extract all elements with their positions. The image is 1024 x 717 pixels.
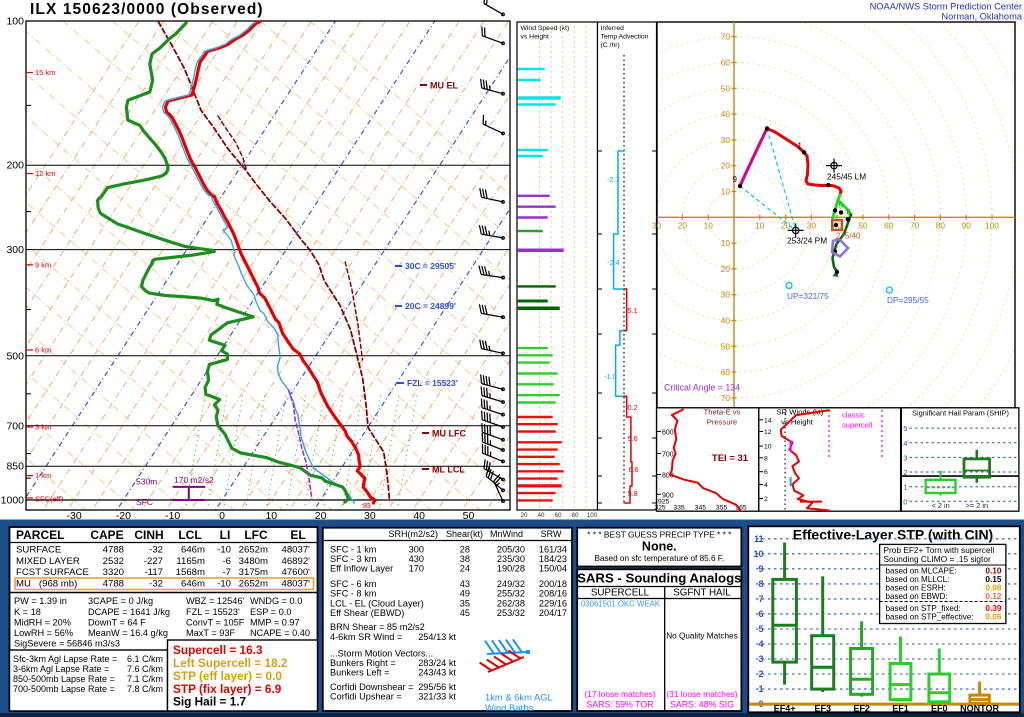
svg-text:70: 70	[721, 32, 731, 42]
svg-text:100: 100	[985, 220, 999, 230]
svg-text:Effective-Layer STP (with CIN): Effective-Layer STP (with CIN)	[793, 527, 993, 543]
svg-text:MaxT = 93F: MaxT = 93F	[186, 628, 235, 638]
svg-text:161/34: 161/34	[539, 545, 567, 555]
svg-text:Wind Speed (kt): Wind Speed (kt)	[521, 25, 570, 32]
svg-text:249/32: 249/32	[497, 579, 525, 589]
svg-text:345: 345	[695, 505, 707, 512]
svg-text:4: 4	[758, 639, 763, 649]
svg-text:Corfidi Downshear =: Corfidi Downshear =	[330, 682, 414, 692]
svg-text:Sig Hail = 1.7: Sig Hail = 1.7	[173, 695, 247, 709]
svg-text:SGFNT HAIL: SGFNT HAIL	[673, 588, 731, 599]
svg-text:SFC - 3 km: SFC - 3 km	[330, 554, 377, 564]
svg-text:7.1 C/km: 7.1 C/km	[127, 674, 163, 684]
svg-text:4: 4	[764, 482, 768, 489]
svg-text:28: 28	[460, 545, 470, 555]
svg-text:LI: LI	[220, 528, 231, 542]
svg-text:Wind Barbs: Wind Barbs	[485, 702, 534, 713]
svg-text:170 m2/s2: 170 m2/s2	[174, 475, 214, 485]
svg-text:10: 10	[721, 238, 731, 248]
svg-text:< 2 in: < 2 in	[931, 501, 949, 510]
svg-text:EF3: EF3	[814, 704, 831, 714]
svg-text:6.1 C/km: 6.1 C/km	[127, 654, 163, 664]
svg-text:3480m: 3480m	[239, 556, 268, 567]
svg-text:8: 8	[758, 579, 763, 589]
svg-text:supercell: supercell	[842, 421, 873, 430]
svg-text:LFC: LFC	[244, 528, 268, 542]
svg-text:30: 30	[721, 135, 731, 145]
svg-text:6: 6	[758, 609, 763, 619]
svg-text:3: 3	[903, 453, 907, 462]
svg-text:20: 20	[721, 161, 731, 171]
svg-text:* * * BEST GUESS PRECIP TYPE *: * * * BEST GUESS PRECIP TYPE * * *	[587, 530, 732, 540]
svg-text:80: 80	[571, 512, 579, 519]
svg-text:2: 2	[764, 496, 768, 503]
svg-text:based on STP_effective:: based on STP_effective:	[886, 613, 974, 622]
svg-text:0.2: 0.2	[628, 403, 638, 412]
svg-text:EF4+: EF4+	[774, 704, 796, 714]
svg-text:10: 10	[753, 549, 763, 559]
svg-text:-6: -6	[222, 556, 231, 567]
svg-text:Corfidi Upshear =: Corfidi Upshear =	[330, 692, 402, 702]
svg-text:646m: 646m	[181, 579, 205, 590]
svg-text:Pressure: Pressure	[707, 418, 737, 427]
svg-text:4788: 4788	[103, 579, 124, 590]
svg-text:700-500mb Lapse Rate =: 700-500mb Lapse Rate =	[13, 684, 115, 694]
svg-text:229/16: 229/16	[539, 599, 567, 609]
svg-text:9: 9	[758, 564, 763, 574]
svg-text:300: 300	[6, 244, 24, 256]
svg-text:530m: 530m	[136, 477, 157, 487]
svg-text:295/56 kt: 295/56 kt	[418, 682, 456, 692]
svg-text:ESP = 0.0: ESP = 0.0	[250, 607, 291, 617]
svg-text:MMP = 0.97: MMP = 0.97	[250, 618, 300, 628]
svg-text:83: 83	[363, 503, 371, 510]
svg-text:LCL - EL (Cloud Layer): LCL - EL (Cloud Layer)	[330, 599, 424, 609]
svg-text:TEI = 31: TEI = 31	[712, 453, 749, 464]
svg-text:700: 700	[6, 420, 24, 432]
svg-text:PW = 1.39 in: PW = 1.39 in	[14, 596, 67, 606]
svg-text:20C = 24899': 20C = 24899'	[405, 301, 456, 311]
svg-text:430: 430	[409, 554, 424, 564]
svg-text:10: 10	[764, 444, 772, 451]
svg-text:No Quality Matches: No Quality Matches	[666, 632, 737, 641]
svg-text:40: 40	[721, 316, 731, 326]
svg-text:Eff Shear (EBWD): Eff Shear (EBWD)	[330, 608, 404, 618]
svg-text:300: 300	[409, 545, 424, 555]
svg-text:30C = 29505': 30C = 29505'	[405, 261, 456, 271]
svg-text:235/30: 235/30	[497, 554, 525, 564]
svg-text:5: 5	[903, 424, 907, 433]
svg-text:255/32: 255/32	[497, 589, 525, 599]
svg-text:100: 100	[587, 512, 598, 519]
svg-text:ConvT = 105F: ConvT = 105F	[186, 618, 245, 628]
svg-text:UP=321/75: UP=321/75	[787, 291, 829, 301]
svg-text:WEAK: WEAK	[637, 600, 661, 609]
svg-text:3-6km Agl Lapse Rate =: 3-6km Agl Lapse Rate =	[13, 664, 109, 674]
svg-text:EL: EL	[290, 528, 305, 542]
svg-text:30: 30	[721, 290, 731, 300]
svg-text:5.1: 5.1	[628, 306, 638, 315]
svg-text:80: 80	[936, 220, 946, 230]
svg-text:3175m: 3175m	[239, 567, 268, 578]
svg-text:None.: None.	[642, 540, 677, 554]
svg-text:355: 355	[716, 505, 728, 512]
svg-text:MidRH = 20%: MidRH = 20%	[14, 618, 71, 628]
svg-text:47600': 47600'	[281, 567, 310, 578]
svg-text:208/16: 208/16	[539, 589, 567, 599]
svg-text:...Storm Motion Vectors...: ...Storm Motion Vectors...	[330, 649, 433, 659]
svg-text:254/13 kt: 254/13 kt	[418, 632, 456, 642]
svg-text:1000: 1000	[1, 495, 25, 507]
svg-text:48037': 48037'	[281, 579, 310, 590]
svg-text:205/30: 205/30	[497, 545, 525, 555]
svg-text:-7: -7	[222, 567, 231, 578]
svg-text:3CAPE = 0 J/kg: 3CAPE = 0 J/kg	[88, 596, 153, 606]
svg-text:SRW: SRW	[541, 529, 562, 539]
svg-text:646m: 646m	[181, 545, 205, 556]
svg-text:38: 38	[460, 554, 470, 564]
svg-text:Shear(kt): Shear(kt)	[446, 529, 483, 539]
svg-text:60: 60	[554, 512, 562, 519]
svg-text:60: 60	[884, 220, 894, 230]
svg-text:6.6: 6.6	[629, 465, 639, 474]
svg-text:40: 40	[721, 109, 731, 119]
svg-text:90: 90	[962, 220, 972, 230]
svg-text:7: 7	[758, 594, 763, 604]
svg-text:MU EL: MU EL	[430, 81, 459, 91]
svg-text:K = 18: K = 18	[14, 607, 41, 617]
svg-text:14: 14	[764, 417, 772, 424]
svg-text:200/18: 200/18	[539, 579, 567, 589]
svg-text:70: 70	[910, 220, 920, 230]
svg-text:vs Height: vs Height	[521, 34, 549, 41]
svg-text:500: 500	[6, 350, 24, 362]
svg-text:DP=295/55: DP=295/55	[887, 295, 929, 305]
svg-text:2: 2	[758, 669, 763, 679]
svg-text:MU LFC: MU LFC	[432, 429, 466, 439]
svg-text:4788: 4788	[103, 545, 124, 556]
svg-text:100: 100	[6, 16, 24, 28]
svg-text:Supercell = 16.3: Supercell = 16.3	[173, 643, 263, 657]
svg-text:WNDG = 0.0: WNDG = 0.0	[250, 596, 302, 606]
svg-text:MIXED LAYER: MIXED LAYER	[16, 556, 80, 567]
svg-text:170: 170	[409, 564, 424, 574]
svg-text:STP (eff layer) = 0.0: STP (eff layer) = 0.0	[173, 669, 282, 683]
svg-text:6: 6	[764, 469, 768, 476]
svg-text:Theta-E vs: Theta-E vs	[704, 408, 741, 417]
svg-text:NOAA/NWS Storm Prediction Cent: NOAA/NWS Storm Prediction Center	[870, 2, 1022, 12]
svg-text:>= 2 in: >= 2 in	[965, 501, 988, 510]
svg-text:60: 60	[721, 367, 731, 377]
svg-text:253/32: 253/32	[497, 608, 525, 618]
svg-text:8: 8	[764, 455, 768, 462]
svg-text:12: 12	[764, 429, 772, 436]
svg-text:2652m: 2652m	[239, 545, 268, 556]
svg-text:-10: -10	[217, 579, 231, 590]
svg-text:WBZ = 12546': WBZ = 12546'	[186, 596, 244, 606]
svg-text:2532: 2532	[103, 556, 124, 567]
svg-text:1 km: 1 km	[35, 471, 51, 480]
svg-text:SURFACE: SURFACE	[16, 545, 61, 556]
svg-text:5: 5	[758, 624, 763, 634]
svg-text:SFC: SFC	[136, 497, 153, 507]
svg-text:11: 11	[754, 534, 764, 544]
svg-text:49: 49	[460, 589, 470, 599]
svg-text:50: 50	[721, 341, 731, 351]
svg-text:3: 3	[758, 654, 763, 664]
svg-text:6 km: 6 km	[35, 346, 51, 355]
svg-text:50: 50	[721, 83, 731, 93]
svg-text:CAPE: CAPE	[90, 528, 123, 542]
svg-text:SFC - 1 km: SFC - 1 km	[330, 545, 377, 555]
svg-text:ML LCL: ML LCL	[432, 465, 465, 475]
svg-text:3 km: 3 km	[35, 423, 51, 432]
svg-text:1: 1	[798, 142, 803, 151]
svg-text:03061501.OKC: 03061501.OKC	[581, 600, 635, 609]
svg-text:50: 50	[858, 220, 868, 230]
svg-text:Left Supercell = 18.2: Left Supercell = 18.2	[173, 656, 288, 670]
svg-text:1km & 6km AGL: 1km & 6km AGL	[485, 692, 553, 703]
svg-text:46892': 46892'	[281, 556, 310, 567]
svg-text:10: 10	[755, 220, 765, 230]
svg-text:5.6: 5.6	[628, 434, 638, 443]
svg-text:NCAPE = 0.40: NCAPE = 0.40	[250, 628, 310, 638]
svg-text:5.8: 5.8	[628, 489, 638, 498]
svg-text:262/38: 262/38	[497, 599, 525, 609]
svg-text:7.8 C/km: 7.8 C/km	[127, 684, 163, 694]
svg-text:-32: -32	[149, 545, 163, 556]
svg-text:Critical Angle = 134: Critical Angle = 134	[664, 383, 740, 393]
svg-text:70: 70	[721, 393, 731, 403]
svg-text:SFC - 8 km: SFC - 8 km	[330, 589, 377, 599]
svg-text:48037': 48037'	[281, 545, 310, 556]
svg-text:204/17: 204/17	[539, 608, 567, 618]
svg-text:-32: -32	[149, 579, 163, 590]
svg-text:60: 60	[721, 58, 731, 68]
svg-text:SFC - 6 km: SFC - 6 km	[330, 579, 377, 589]
svg-text:10: 10	[721, 187, 731, 197]
svg-text:2652m: 2652m	[239, 579, 268, 590]
svg-text:Inferred: Inferred	[601, 25, 625, 32]
svg-text:12 km: 12 km	[35, 169, 55, 178]
svg-text:MnWind: MnWind	[490, 529, 523, 539]
svg-text:600: 600	[662, 430, 674, 437]
svg-text:MU (968 mb): MU (968 mb)	[16, 579, 77, 590]
svg-text:1: 1	[758, 684, 763, 694]
svg-text:EF1: EF1	[892, 704, 909, 714]
svg-text:4-6km SR Wind =: 4-6km SR Wind =	[330, 632, 402, 642]
svg-text:-227: -227	[144, 556, 163, 567]
svg-text:classic: classic	[842, 411, 865, 420]
svg-text:Bunkers Right =: Bunkers Right =	[330, 658, 396, 668]
svg-text:EF0: EF0	[931, 704, 948, 714]
svg-text:CINH: CINH	[134, 528, 163, 542]
svg-text:SUPERCELL: SUPERCELL	[591, 588, 650, 599]
svg-text:325: 325	[654, 505, 666, 512]
svg-text:0.12: 0.12	[985, 591, 1002, 601]
svg-text:40: 40	[537, 512, 545, 519]
svg-text:SARS: 48% SIG: SARS: 48% SIG	[670, 700, 734, 710]
svg-text:20: 20	[520, 512, 528, 519]
svg-text:BRN Shear = 85 m2/s2: BRN Shear = 85 m2/s2	[330, 622, 425, 632]
svg-text:43: 43	[460, 579, 470, 589]
svg-text:1165m: 1165m	[176, 556, 205, 567]
svg-text:SARS: 59% TOR: SARS: 59% TOR	[586, 700, 653, 710]
svg-text:-1.0: -1.0	[604, 372, 617, 381]
svg-text:ILX 150623/0000 (Observed): ILX 150623/0000 (Observed)	[30, 1, 264, 18]
svg-text:(C /hr): (C /hr)	[601, 42, 620, 49]
svg-text:Based on sfc temperature of 85: Based on sfc temperature of 85.6 F.	[594, 554, 724, 563]
svg-text:700: 700	[662, 451, 674, 458]
svg-text:321/33 kt: 321/33 kt	[418, 692, 456, 702]
svg-text:PARCEL: PARCEL	[16, 528, 64, 542]
svg-text:184/23: 184/23	[539, 554, 567, 564]
svg-text:35: 35	[460, 599, 470, 609]
svg-text:190/28: 190/28	[497, 564, 525, 574]
svg-text:(17 loose matches): (17 loose matches)	[584, 689, 655, 699]
svg-text:SigSevere = 56846 m3/s3: SigSevere = 56846 m3/s3	[14, 639, 120, 649]
svg-text:DownT = 64 F: DownT = 64 F	[88, 618, 146, 628]
svg-text:EF2: EF2	[853, 704, 870, 714]
svg-text:200: 200	[6, 160, 24, 172]
svg-text:MeanW = 16.4 g/kg: MeanW = 16.4 g/kg	[88, 628, 168, 638]
svg-text:5: 5	[839, 202, 844, 211]
svg-text:45: 45	[460, 608, 470, 618]
svg-text:0.06: 0.06	[985, 612, 1002, 622]
svg-text:(31 loose matches): (31 loose matches)	[666, 689, 737, 699]
svg-text:20: 20	[678, 220, 688, 230]
svg-text:283/24 kt: 283/24 kt	[418, 658, 456, 668]
svg-text:SARS - Sounding Analogs: SARS - Sounding Analogs	[577, 571, 741, 586]
svg-text:LCL: LCL	[178, 528, 201, 542]
svg-text:FZL = 15523': FZL = 15523'	[186, 607, 240, 617]
svg-text:24: 24	[460, 564, 470, 574]
svg-text:FZL = 15523': FZL = 15523'	[407, 378, 458, 388]
svg-text:1568m: 1568m	[176, 567, 205, 578]
svg-text:Sfc-3km Agl Lapse Rate =: Sfc-3km Agl Lapse Rate =	[13, 654, 117, 664]
svg-text:Temp Advection: Temp Advection	[601, 34, 649, 41]
svg-text:30: 30	[652, 220, 662, 230]
svg-text:SFC(eff): SFC(eff)	[35, 495, 64, 504]
svg-text:6: 6	[847, 208, 852, 217]
svg-text:Sounding CLIMO = .15 sigtor: Sounding CLIMO = .15 sigtor	[884, 554, 991, 564]
svg-text:0: 0	[903, 497, 907, 506]
svg-text:4: 4	[903, 439, 907, 448]
svg-text:based on EBWD:: based on EBWD:	[886, 592, 948, 601]
svg-text:850-500mb Lapse Rate =: 850-500mb Lapse Rate =	[13, 674, 115, 684]
svg-text:150/04: 150/04	[539, 564, 567, 574]
svg-text:20: 20	[721, 264, 731, 274]
svg-text:10: 10	[704, 220, 714, 230]
svg-text:15 km: 15 km	[35, 68, 55, 77]
svg-text:Significant Hail Param (SHIP): Significant Hail Param (SHIP)	[912, 409, 1009, 418]
svg-text:9: 9	[733, 175, 738, 184]
svg-text:-10: -10	[217, 545, 231, 556]
svg-text:-117: -117	[145, 567, 164, 578]
svg-text:253/24 PM: 253/24 PM	[787, 236, 827, 246]
svg-text:9 km: 9 km	[35, 260, 51, 269]
svg-text:Norman, Oklahoma: Norman, Oklahoma	[941, 12, 1022, 22]
svg-text:Eff Inflow Layer: Eff Inflow Layer	[330, 564, 393, 574]
svg-text:LowRH = 56%: LowRH = 56%	[14, 628, 73, 638]
svg-text:3320: 3320	[103, 567, 124, 578]
svg-text:-2.7: -2.7	[607, 175, 620, 184]
svg-text:NONTOR: NONTOR	[960, 704, 999, 714]
svg-text:850: 850	[6, 461, 24, 473]
svg-text:1: 1	[903, 483, 907, 492]
svg-text:DCAPE = 1641 J/kg: DCAPE = 1641 J/kg	[88, 607, 170, 617]
svg-text:-2.4: -2.4	[607, 258, 620, 267]
svg-text:335: 335	[673, 505, 685, 512]
svg-text:FCST SURFACE: FCST SURFACE	[16, 567, 89, 578]
svg-text:SRH(m2/s2): SRH(m2/s2)	[388, 529, 438, 539]
svg-text:Bunkers Left =: Bunkers Left =	[330, 668, 390, 678]
svg-text:30: 30	[807, 220, 817, 230]
svg-text:7.6 C/km: 7.6 C/km	[127, 664, 163, 674]
svg-text:245/45 LM: 245/45 LM	[827, 172, 866, 182]
svg-text:243/43 kt: 243/43 kt	[418, 668, 456, 678]
